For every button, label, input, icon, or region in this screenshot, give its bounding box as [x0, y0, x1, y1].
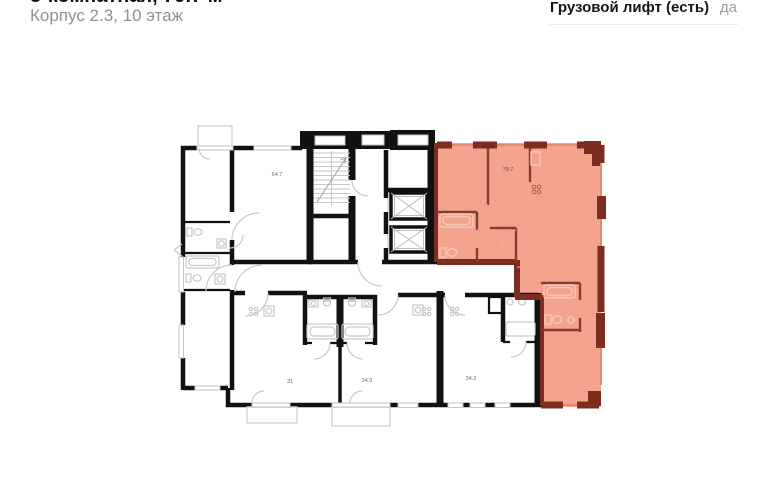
vent-shafts: [300, 130, 435, 150]
spec-freight-elevator-value: да: [720, 0, 737, 16]
spec-divider: [549, 24, 738, 25]
spec-freight-elevator-label: Грузовой лифт (есть): [550, 0, 709, 16]
staircase: [314, 151, 351, 206]
room-area-label-highlighted: 79.7: [503, 167, 514, 173]
room-area-label: 31: [287, 379, 293, 385]
elevator-shafts: [388, 193, 427, 252]
room-area-label: 64.7: [272, 172, 283, 178]
page-subtitle: Корпус 2.3, 10 этаж: [30, 6, 183, 26]
room-area-label: 34.9: [362, 378, 373, 384]
room-area-label: 34.3: [466, 376, 477, 382]
page: { "header": { "title": "3-комнатная, 79.…: [0, 0, 770, 500]
floor-plan-svg: 64.7 79.7 31 34.9 34.3: [168, 112, 618, 442]
floor-plan: 64.7 79.7 31 34.9 34.3: [168, 112, 618, 442]
